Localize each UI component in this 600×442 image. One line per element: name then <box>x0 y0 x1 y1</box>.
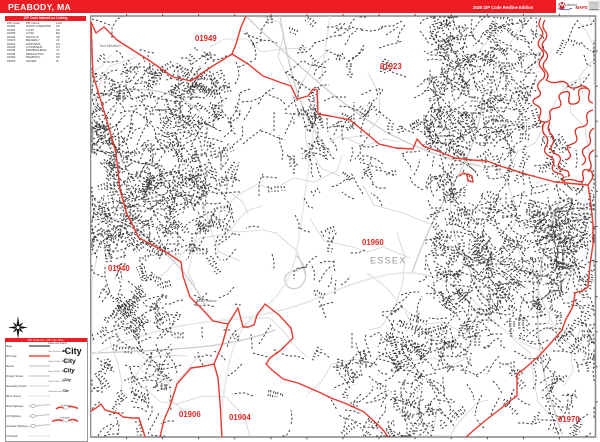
svg-text:MAPS: MAPS <box>576 5 588 10</box>
svg-text:Peabody: Peabody <box>533 273 549 278</box>
svg-text:State Route: State Route <box>61 404 71 407</box>
svg-text:01960: 01960 <box>362 238 384 247</box>
svg-text:01923: 01923 <box>380 62 402 71</box>
svg-text:ESSEX: ESSEX <box>370 256 407 266</box>
svg-text:West Peabody: West Peabody <box>196 299 217 303</box>
svg-text:01904: 01904 <box>229 413 251 422</box>
svg-text:01970: 01970 <box>558 415 580 424</box>
svg-text:01906: 01906 <box>179 410 201 419</box>
svg-text:State Route: State Route <box>60 416 70 419</box>
svg-text:01949: 01949 <box>195 34 217 43</box>
svg-text:Nort Middleton: Nort Middleton <box>100 44 121 48</box>
svg-text:01940: 01940 <box>108 264 130 273</box>
